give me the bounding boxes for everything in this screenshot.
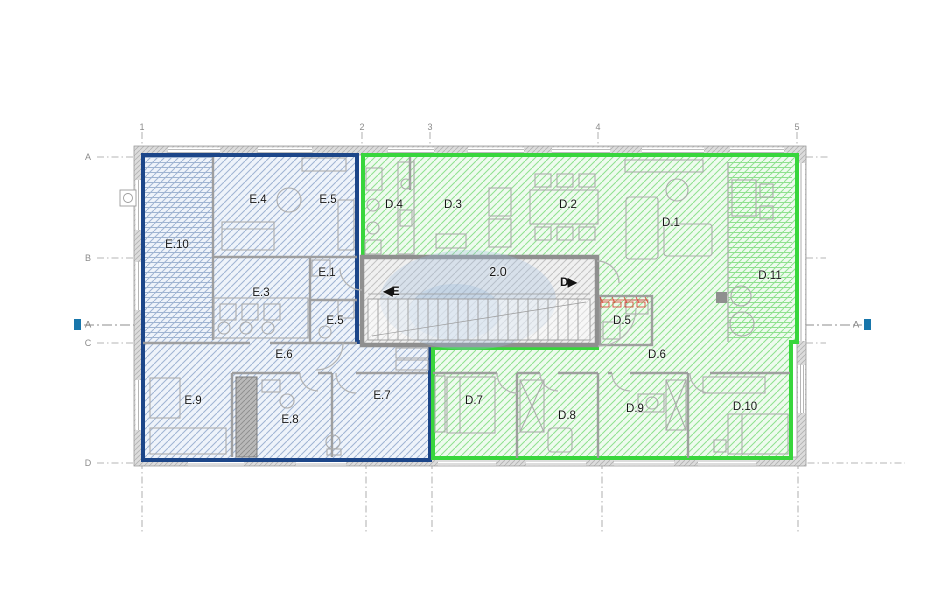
grid-column-1: 1 bbox=[139, 122, 144, 132]
section-marker-right bbox=[864, 319, 871, 330]
column bbox=[716, 292, 727, 303]
grid-row-d: D bbox=[85, 458, 92, 468]
grid-column-4: 4 bbox=[595, 122, 600, 132]
grid-row-a: A bbox=[85, 152, 91, 162]
section-label-right: A bbox=[853, 320, 859, 331]
grid-column-5: 5 bbox=[794, 122, 799, 132]
grid-column-2: 2 bbox=[359, 122, 364, 132]
floor-plan-drawing bbox=[0, 0, 944, 591]
stair-treads bbox=[368, 294, 590, 340]
shaft bbox=[236, 377, 257, 457]
terrace-rail bbox=[798, 163, 805, 341]
section-label-left: A bbox=[85, 320, 91, 331]
section-marker-left bbox=[74, 319, 81, 330]
grid-row-b: B bbox=[85, 253, 91, 263]
terrace-e10 bbox=[145, 157, 213, 340]
grid-row-c: C bbox=[85, 338, 92, 348]
stairwell-core bbox=[362, 250, 597, 350]
grid-column-3: 3 bbox=[427, 122, 432, 132]
corner-marker bbox=[120, 190, 136, 206]
floor-plan-canvas: E.4E.5E.10E.1E.3E.5E.6E.9E.8E.7D.4D.3D.2… bbox=[0, 0, 944, 591]
